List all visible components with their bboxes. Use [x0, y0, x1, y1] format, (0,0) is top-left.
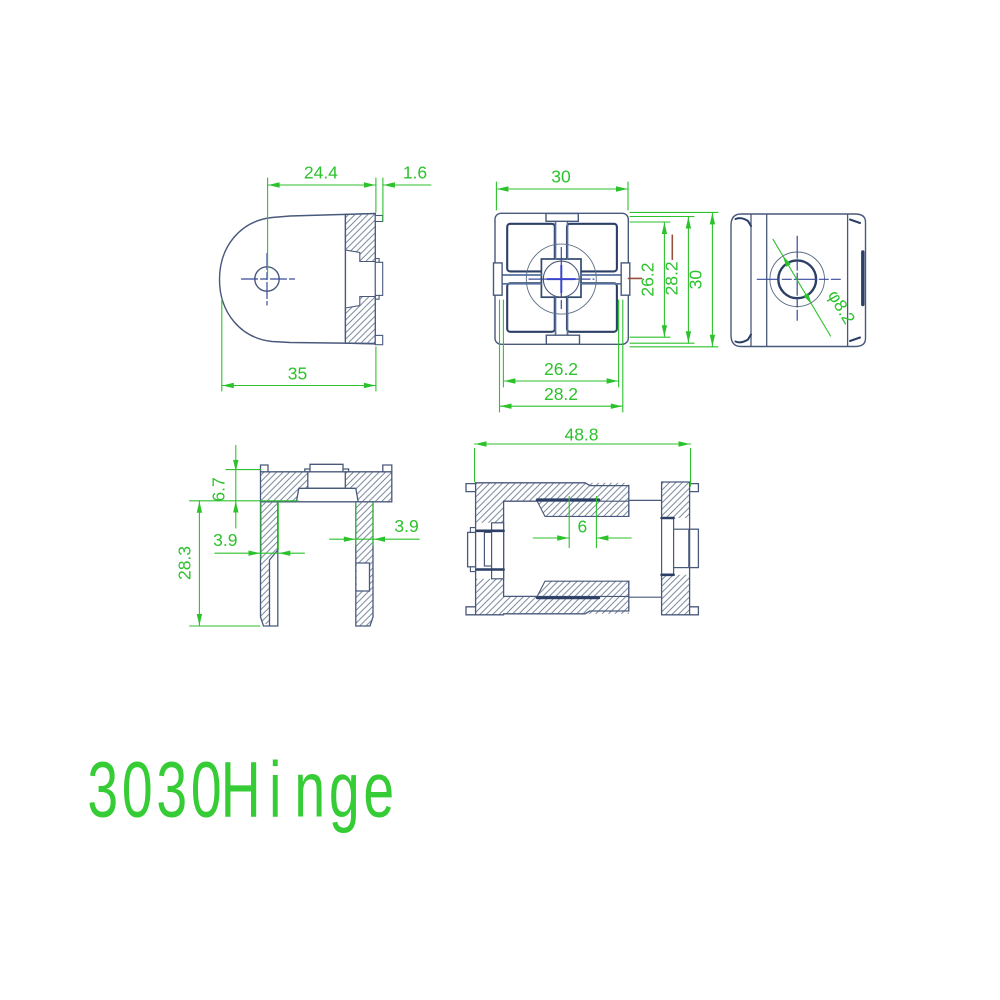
- svg-text:48.8: 48.8: [564, 425, 598, 445]
- svg-text:26.2: 26.2: [638, 263, 658, 297]
- svg-text:30: 30: [551, 167, 571, 187]
- svg-text:26.2: 26.2: [544, 359, 578, 379]
- svg-text:3.9: 3.9: [394, 516, 418, 536]
- svg-text:28.3: 28.3: [175, 546, 195, 580]
- svg-text:35: 35: [288, 364, 307, 384]
- svg-text:24.4: 24.4: [304, 163, 338, 183]
- svg-text:28.2: 28.2: [544, 384, 578, 404]
- svg-text:6: 6: [578, 517, 588, 537]
- svg-text:1.6: 1.6: [403, 163, 427, 183]
- svg-text:30: 30: [686, 270, 706, 290]
- svg-text:3030Hinge: 3030Hinge: [87, 746, 394, 834]
- svg-text:28.2: 28.2: [662, 261, 682, 295]
- svg-text:3.9: 3.9: [213, 530, 237, 550]
- svg-text:6.7: 6.7: [209, 477, 229, 501]
